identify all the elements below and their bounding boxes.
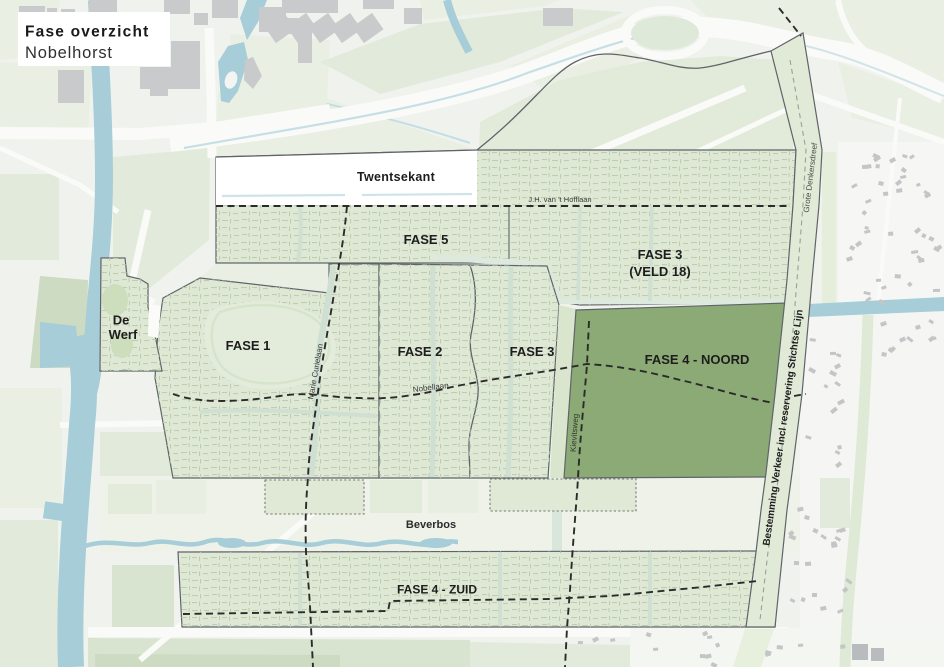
svg-text:FASE 3: FASE 3	[638, 247, 683, 262]
svg-text:Fase overzicht: Fase overzicht	[25, 24, 149, 41]
svg-text:De: De	[113, 313, 130, 328]
svg-text:Werf: Werf	[109, 327, 138, 342]
svg-text:FASE 4 - ZUID: FASE 4 - ZUID	[397, 583, 477, 597]
svg-text:FASE 2: FASE 2	[398, 344, 443, 359]
svg-text:J.H. van ’t Hofflaan: J.H. van ’t Hofflaan	[528, 195, 591, 204]
svg-text:Beverbos: Beverbos	[406, 519, 456, 531]
svg-text:FASE 1: FASE 1	[226, 338, 271, 353]
svg-text:FASE 3: FASE 3	[510, 344, 555, 359]
svg-text:(VELD 18): (VELD 18)	[629, 264, 690, 279]
svg-text:Nobelhorst: Nobelhorst	[25, 44, 113, 62]
svg-text:FASE 5: FASE 5	[404, 232, 449, 247]
svg-text:Twentsekant: Twentsekant	[357, 170, 436, 184]
svg-text:FASE 4 - NOORD: FASE 4 - NOORD	[645, 352, 750, 367]
